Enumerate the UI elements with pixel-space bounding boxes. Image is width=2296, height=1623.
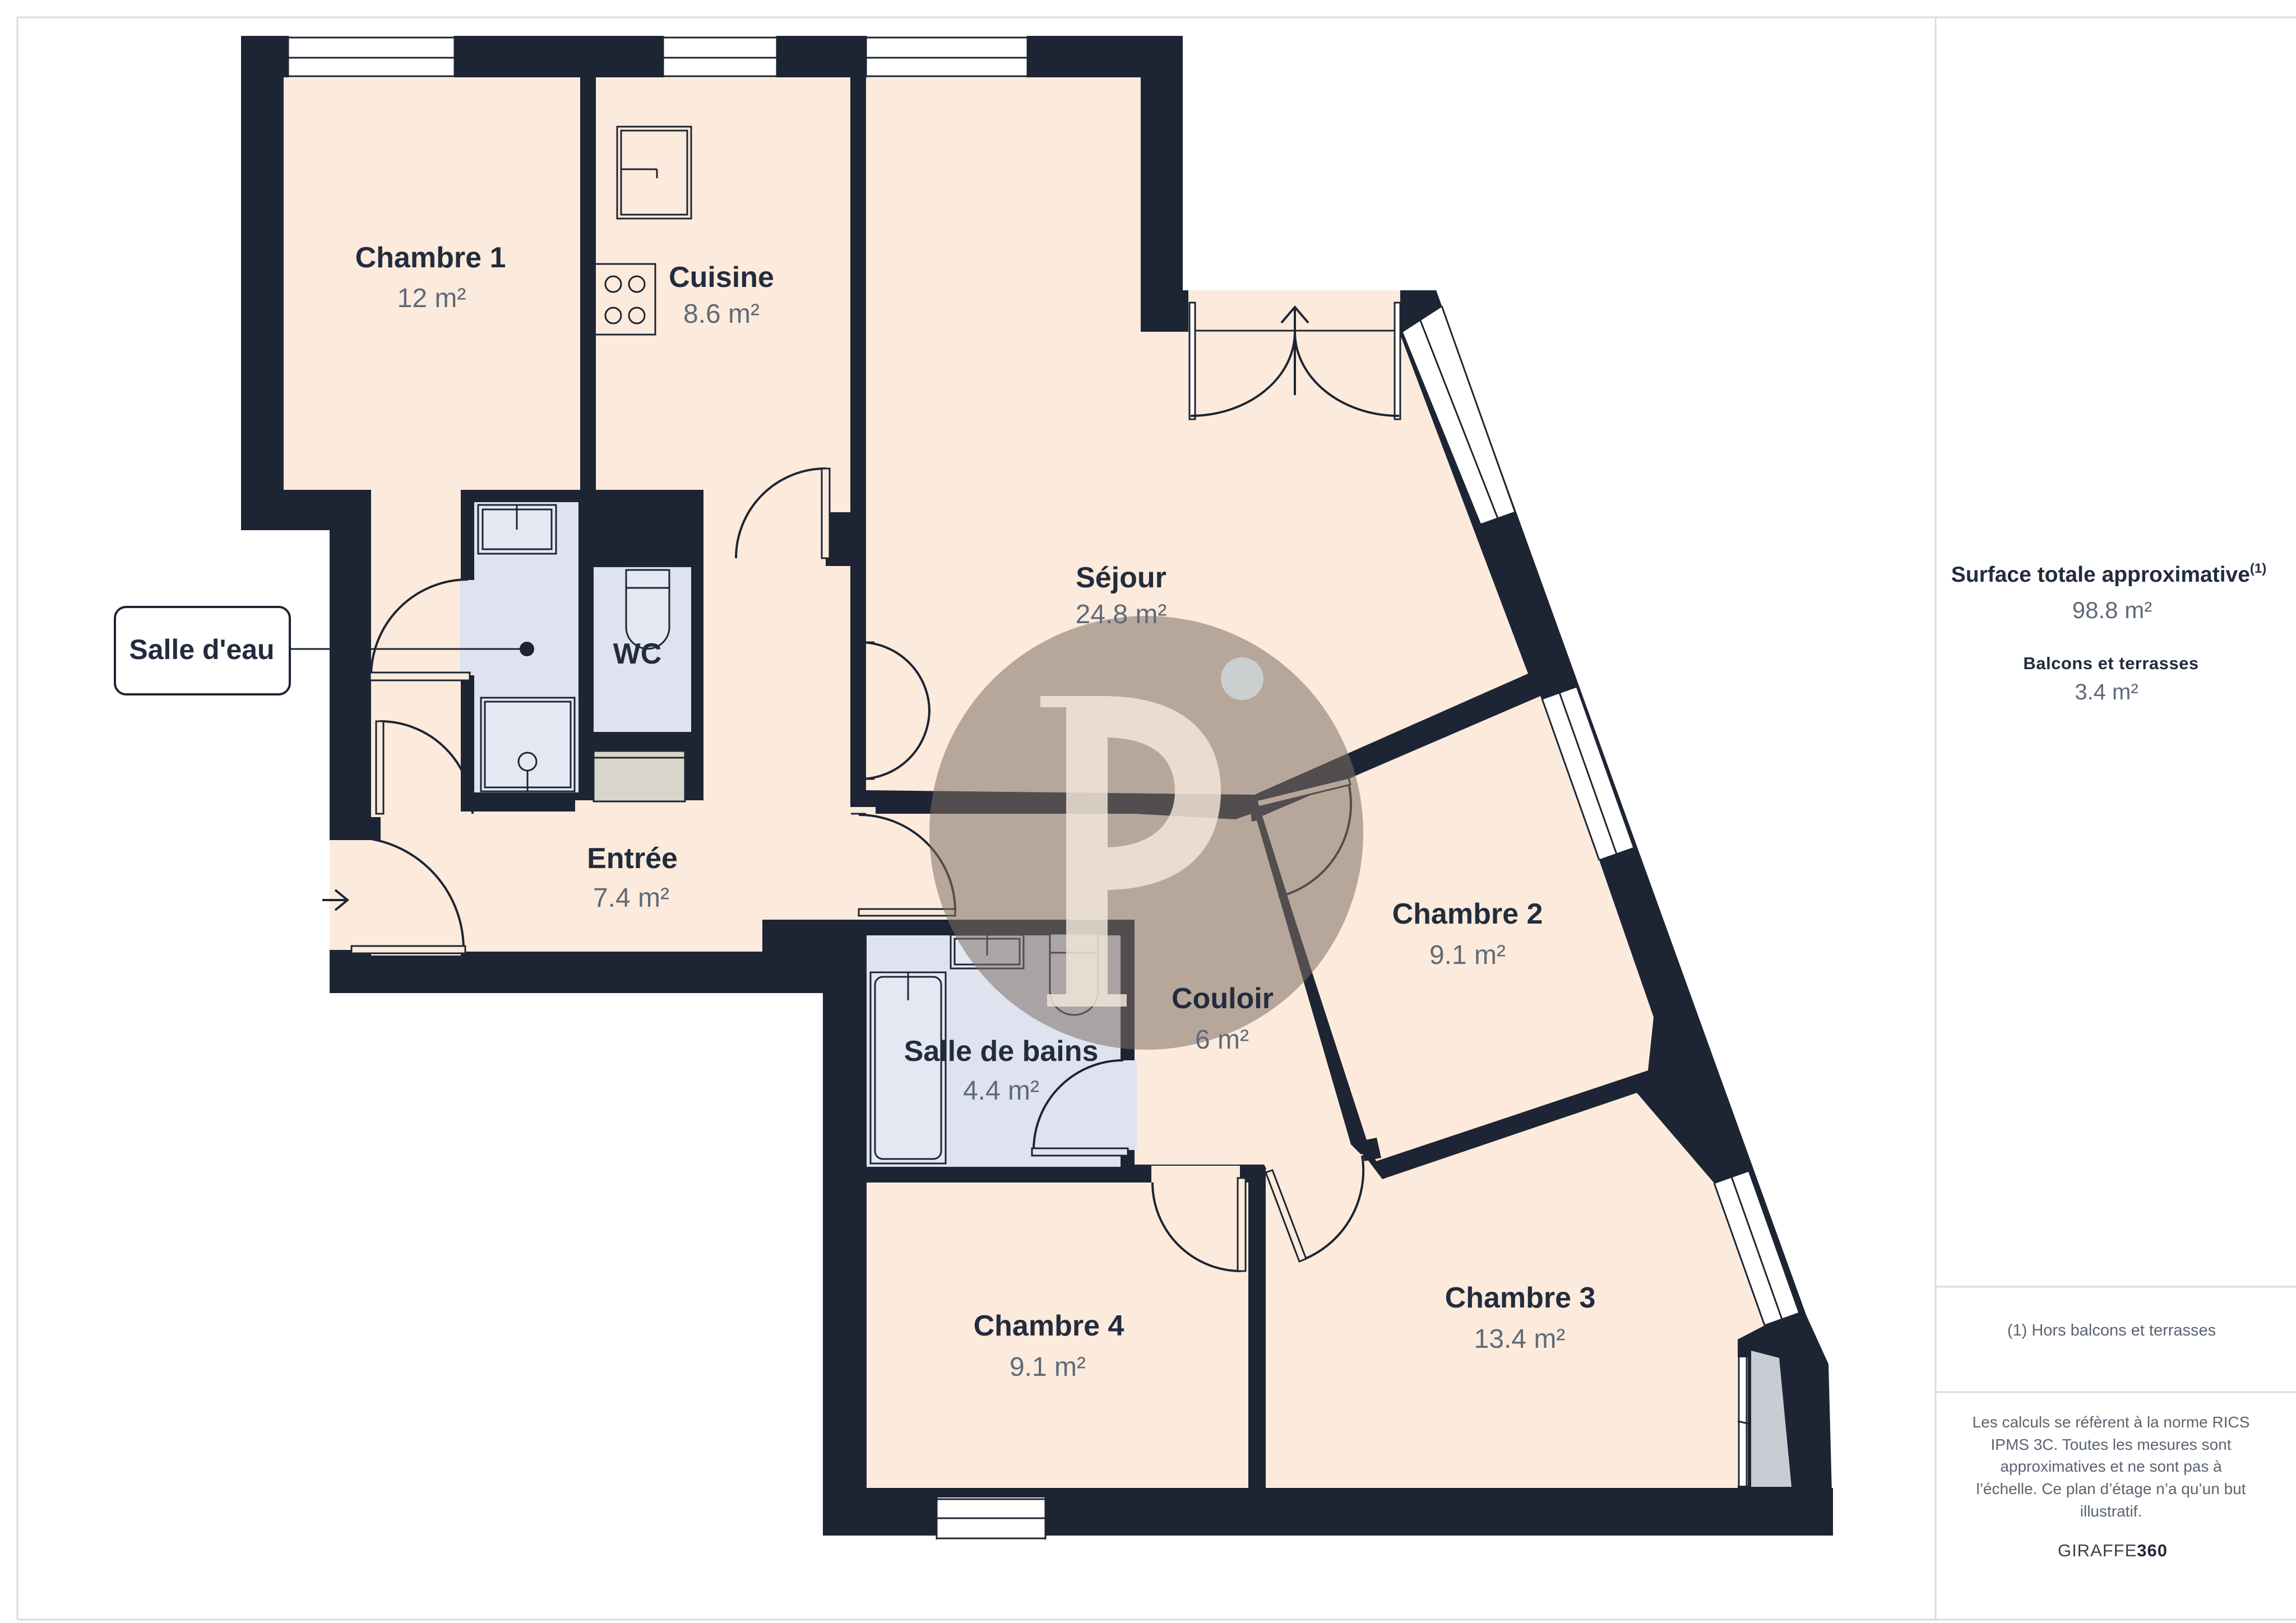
svg-text:4.4 m²: 4.4 m²: [963, 1076, 1039, 1106]
svg-text:9.1 m²: 9.1 m²: [1010, 1352, 1086, 1382]
svg-text:Chambre 1: Chambre 1: [355, 242, 506, 274]
svg-text:Les calculs se réfèrent à la n: Les calculs se réfèrent à la norme RICS: [1973, 1413, 2250, 1431]
svg-text:24.8 m²: 24.8 m²: [1076, 600, 1167, 629]
svg-text:98.8 m²: 98.8 m²: [2072, 597, 2152, 623]
svg-text:7.4 m²: 7.4 m²: [593, 883, 669, 913]
svg-text:13.4 m²: 13.4 m²: [1474, 1324, 1566, 1354]
svg-text:Entrée: Entrée: [587, 842, 678, 875]
svg-text:Salle d'eau: Salle d'eau: [129, 634, 274, 665]
svg-text:Balcons et terrasses: Balcons et terrasses: [2023, 653, 2198, 673]
svg-text:GIRAFFE360: GIRAFFE360: [2058, 1541, 2168, 1560]
svg-text:8.6 m²: 8.6 m²: [683, 299, 760, 329]
svg-text:12 m²: 12 m²: [397, 284, 466, 313]
svg-text:Surface totale approximative(1: Surface totale approximative(1): [1951, 561, 2267, 587]
svg-text:3.4 m²: 3.4 m²: [2075, 680, 2138, 704]
svg-text:approximatives et ne sont pas: approximatives et ne sont pas à: [2000, 1458, 2222, 1475]
svg-text:Cuisine: Cuisine: [669, 261, 774, 294]
svg-text:Chambre 4: Chambre 4: [974, 1310, 1124, 1342]
svg-text:9.1 m²: 9.1 m²: [1429, 940, 1506, 970]
svg-text:(1) Hors balcons et terrasses: (1) Hors balcons et terrasses: [2007, 1321, 2216, 1339]
svg-text:Chambre 2: Chambre 2: [1392, 898, 1543, 930]
svg-text:6 m²: 6 m²: [1195, 1025, 1249, 1055]
svg-text:Salle de bains: Salle de bains: [904, 1035, 1099, 1068]
svg-text:l’échelle. Ce plan d’étage n’a: l’échelle. Ce plan d’étage n’a qu’un but: [1976, 1480, 2246, 1497]
svg-text:Couloir: Couloir: [1172, 982, 1274, 1015]
svg-text:WC: WC: [613, 638, 662, 670]
svg-text:illustratif.: illustratif.: [2080, 1503, 2142, 1520]
svg-text:Chambre 3: Chambre 3: [1445, 1282, 1596, 1314]
svg-text:IPMS 3C. Toutes les mesures so: IPMS 3C. Toutes les mesures sont: [1991, 1436, 2232, 1453]
svg-text:Séjour: Séjour: [1076, 562, 1166, 594]
